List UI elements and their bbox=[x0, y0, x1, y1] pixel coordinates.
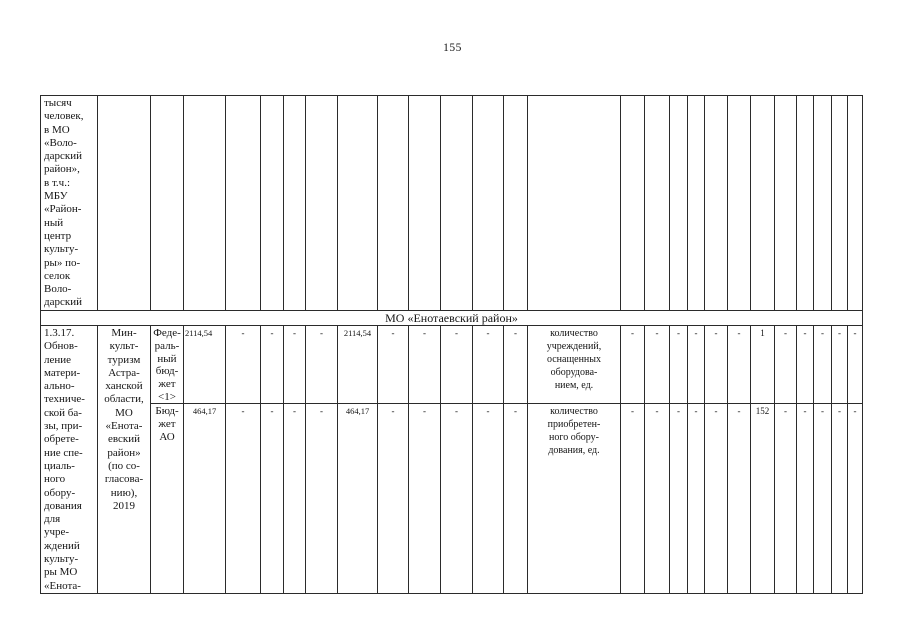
federal-year-value-cell: - bbox=[504, 326, 528, 404]
region-year-value-cell: - bbox=[226, 404, 261, 594]
indicator-value-cell: - bbox=[797, 326, 814, 404]
empty-cell bbox=[306, 96, 338, 311]
task-description-continued-cell: тысяч человек, в МО «Воло- дарский район… bbox=[41, 96, 98, 311]
indicator-value-cell: - bbox=[645, 326, 670, 404]
empty-cell bbox=[261, 96, 284, 311]
empty-cell bbox=[688, 96, 705, 311]
page-number: 155 bbox=[0, 42, 905, 54]
region-year-value-cell: - bbox=[261, 404, 284, 594]
indicator-value-cell: - bbox=[814, 326, 832, 404]
empty-cell bbox=[797, 96, 814, 311]
region-year-value-cell: 464,17 bbox=[338, 404, 378, 594]
empty-cell bbox=[151, 96, 184, 311]
budget-source-region-cell: Бюд- жет АО bbox=[151, 404, 184, 594]
region-year-value-cell: - bbox=[473, 404, 504, 594]
indicator-value-cell: - bbox=[705, 326, 728, 404]
executor-cell: Мин- культ- туризм Астра- ханской област… bbox=[98, 326, 151, 594]
municipality-section-header: МО «Енотаевский район» bbox=[41, 311, 863, 326]
empty-cell bbox=[705, 96, 728, 311]
indicator-value-cell: - bbox=[728, 404, 751, 594]
indicator-value-cell: - bbox=[621, 326, 645, 404]
federal-year-value-cell: - bbox=[409, 326, 441, 404]
indicator-value-cell: - bbox=[775, 404, 797, 594]
indicator-value-cell: - bbox=[797, 404, 814, 594]
empty-cell bbox=[378, 96, 409, 311]
indicator-value-cell: 1 bbox=[751, 326, 775, 404]
empty-cell bbox=[814, 96, 832, 311]
indicator-value-cell: - bbox=[832, 326, 848, 404]
empty-cell bbox=[184, 96, 226, 311]
task-number-title-cell: 1.3.17. Обнов- ление матери- ально- техн… bbox=[41, 326, 98, 594]
indicator-value-cell: - bbox=[832, 404, 848, 594]
empty-cell bbox=[409, 96, 441, 311]
empty-cell bbox=[98, 96, 151, 311]
indicator-value-cell: - bbox=[645, 404, 670, 594]
federal-year-value-cell: - bbox=[441, 326, 473, 404]
empty-cell bbox=[473, 96, 504, 311]
federal-year-value-cell: - bbox=[226, 326, 261, 404]
empty-cell bbox=[728, 96, 751, 311]
federal-year-value-cell: 2114,54 bbox=[338, 326, 378, 404]
indicator-value-cell: - bbox=[688, 404, 705, 594]
empty-cell bbox=[621, 96, 645, 311]
region-total-cell: 464,17 bbox=[184, 404, 226, 594]
region-year-value-cell: - bbox=[284, 404, 306, 594]
indicator-value-cell: - bbox=[848, 404, 863, 594]
indicator-value-cell: - bbox=[621, 404, 645, 594]
federal-year-value-cell: - bbox=[284, 326, 306, 404]
budget-source-federal-cell: Феде- раль- ный бюд- жет <1> bbox=[151, 326, 184, 404]
region-year-value-cell: - bbox=[306, 404, 338, 594]
region-year-value-cell: - bbox=[441, 404, 473, 594]
indicator-value-cell: - bbox=[670, 326, 688, 404]
region-year-value-cell: - bbox=[378, 404, 409, 594]
empty-cell bbox=[775, 96, 797, 311]
federal-total-cell: 2114,54 bbox=[184, 326, 226, 404]
program-table: тысяч человек, в МО «Воло- дарский район… bbox=[40, 95, 863, 594]
empty-cell bbox=[832, 96, 848, 311]
federal-year-value-cell: - bbox=[306, 326, 338, 404]
empty-cell bbox=[670, 96, 688, 311]
federal-year-value-cell: - bbox=[473, 326, 504, 404]
federal-year-value-cell: - bbox=[261, 326, 284, 404]
indicator-value-cell: - bbox=[705, 404, 728, 594]
region-year-value-cell: - bbox=[409, 404, 441, 594]
empty-cell bbox=[848, 96, 863, 311]
indicator-value-cell: 152 bbox=[751, 404, 775, 594]
indicator-value-cell: - bbox=[814, 404, 832, 594]
indicator-name-cell: количество приобретен- ного обору- дован… bbox=[528, 404, 621, 594]
indicator-value-cell: - bbox=[728, 326, 751, 404]
indicator-value-cell: - bbox=[848, 326, 863, 404]
federal-year-value-cell: - bbox=[378, 326, 409, 404]
empty-cell bbox=[504, 96, 528, 311]
indicator-value-cell: - bbox=[670, 404, 688, 594]
empty-cell bbox=[751, 96, 775, 311]
indicator-name-cell: количество учреждений, оснащенных оборуд… bbox=[528, 326, 621, 404]
indicator-value-cell: - bbox=[688, 326, 705, 404]
indicator-value-cell: - bbox=[775, 326, 797, 404]
empty-cell bbox=[226, 96, 261, 311]
region-year-value-cell: - bbox=[504, 404, 528, 594]
empty-cell bbox=[645, 96, 670, 311]
empty-cell bbox=[338, 96, 378, 311]
empty-cell bbox=[528, 96, 621, 311]
empty-cell bbox=[284, 96, 306, 311]
empty-cell bbox=[441, 96, 473, 311]
